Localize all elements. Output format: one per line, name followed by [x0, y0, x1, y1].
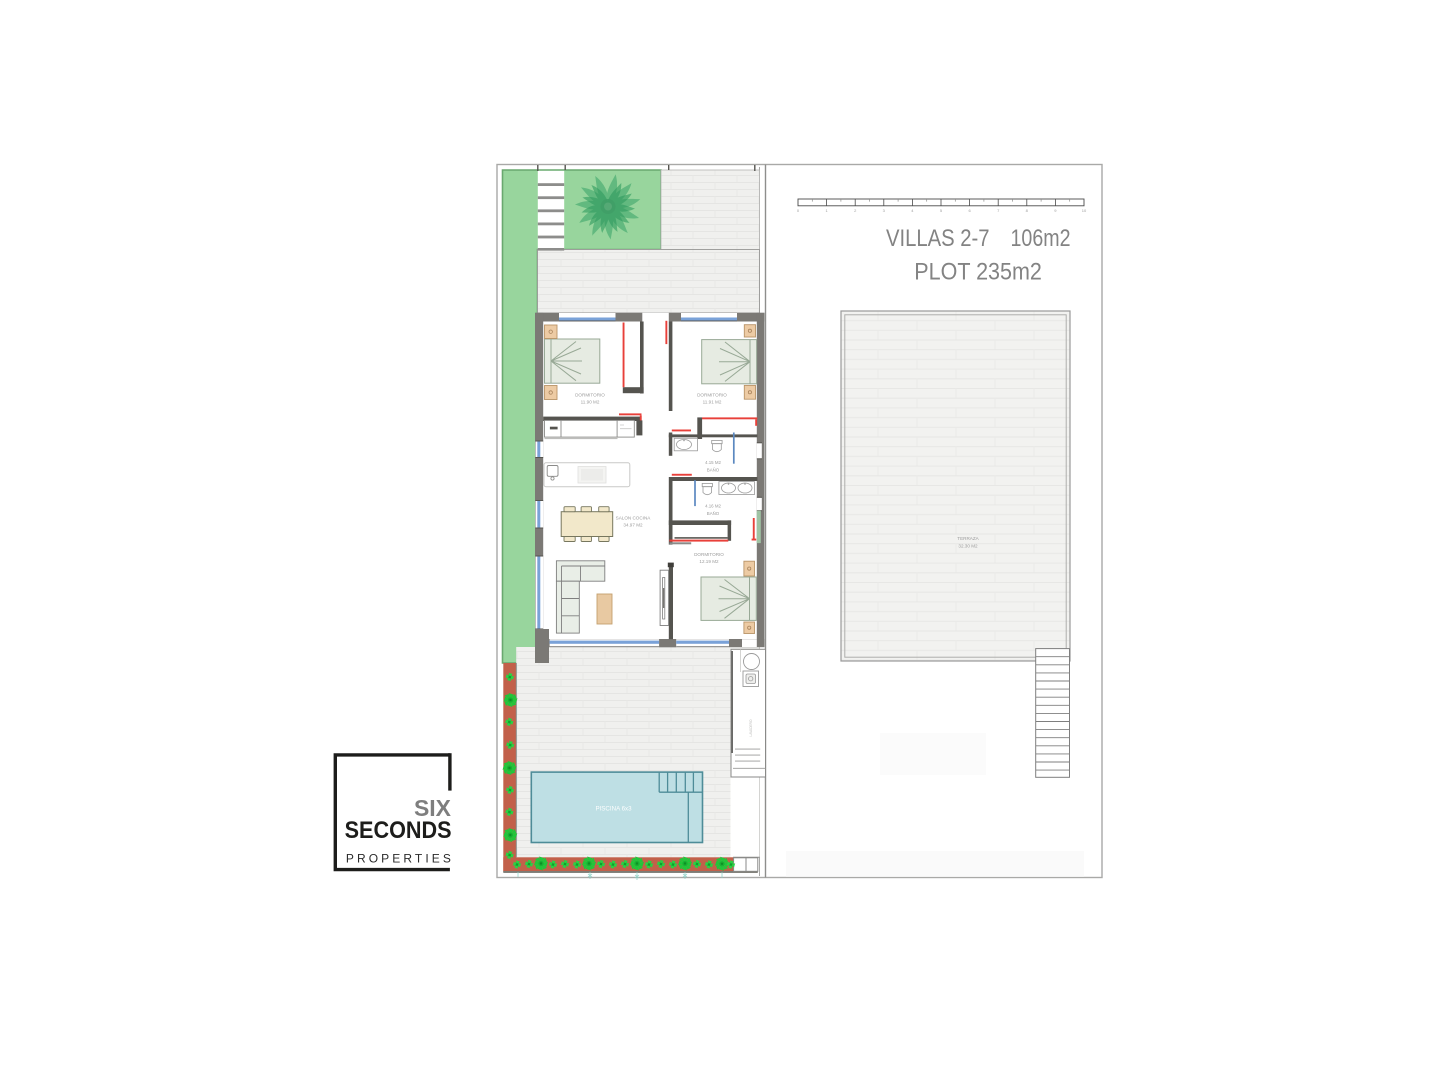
svg-text:11.90 M2: 11.90 M2 [581, 400, 600, 405]
svg-text:4.16 M2: 4.16 M2 [705, 504, 721, 509]
svg-text:32.30 M2: 32.30 M2 [958, 544, 978, 549]
svg-text:SALON COCINA: SALON COCINA [616, 516, 652, 521]
svg-text:106m2: 106m2 [1011, 225, 1071, 252]
svg-text:10: 10 [1082, 208, 1087, 213]
svg-text:BAÑO: BAÑO [707, 468, 720, 473]
svg-text:PLOT 235m2: PLOT 235m2 [914, 259, 1042, 286]
svg-text:11.91 M2: 11.91 M2 [703, 400, 722, 405]
svg-text:DORMITORIO: DORMITORIO [694, 552, 724, 557]
svg-text:34.97 M2: 34.97 M2 [623, 523, 643, 528]
svg-text:12.19 M2: 12.19 M2 [699, 559, 719, 564]
svg-text:DORMITORIO: DORMITORIO [697, 393, 727, 398]
svg-text:TERRAZA: TERRAZA [957, 536, 979, 541]
svg-text:VILLAS 2-7: VILLAS 2-7 [886, 225, 990, 252]
svg-text:4.15 M2: 4.15 M2 [705, 460, 721, 465]
svg-text:PISCINA 6x3: PISCINA 6x3 [595, 806, 632, 813]
svg-text:LAVADERO: LAVADERO [749, 719, 753, 736]
svg-text:SECONDS: SECONDS [345, 817, 452, 844]
svg-text:DORMITORIO: DORMITORIO [575, 393, 605, 398]
svg-text:PROPERTIES: PROPERTIES [346, 852, 451, 866]
svg-text:BAÑO: BAÑO [707, 511, 720, 516]
